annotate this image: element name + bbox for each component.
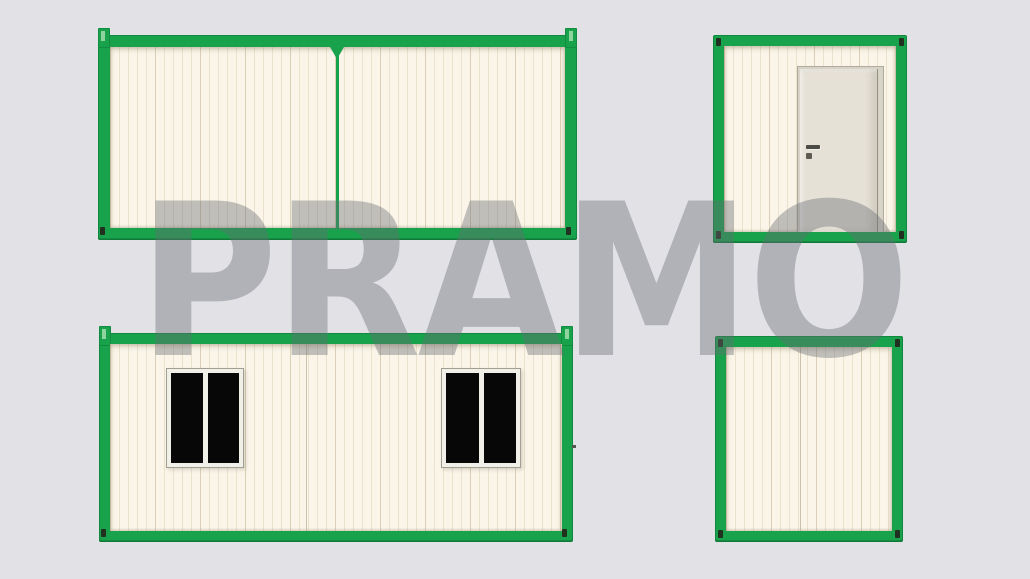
window-pane [484,373,517,463]
wall-panels [110,47,565,228]
panel-seam [800,347,801,531]
corner-hole [895,339,900,347]
window-pane [208,373,240,463]
elevation-long-windows [99,333,573,542]
window-pane [446,373,479,463]
elevation-long-joined [98,35,577,240]
elevation-end-door [713,35,907,243]
casting-slot [569,31,573,41]
corner-hole [899,231,904,239]
door-keyhole-icon [806,153,812,159]
wall-panels [724,46,896,232]
door-frame [797,66,884,232]
corner-casting-icon [99,326,111,346]
corner-hole [716,231,721,239]
corner-hole [566,227,571,235]
corner-hole [899,38,904,46]
corner-hole [718,530,723,538]
corner-hole [562,529,567,537]
door [800,69,878,232]
corner-hole [718,339,723,347]
casting-slot [101,31,105,41]
side-latch [572,445,576,448]
corner-hole [716,38,721,46]
corner-casting-icon [98,28,110,48]
module-joint [336,47,339,228]
wall-panels [110,344,562,531]
container-building-render [0,0,1030,579]
wall-panels [726,347,892,531]
corner-hole [895,530,900,538]
elevation-end-plain [715,336,903,542]
window [166,368,244,468]
window [441,368,521,468]
casting-slot [565,329,569,339]
door-handle-icon [806,145,820,149]
corner-casting-icon [565,28,577,48]
corner-hole [101,529,106,537]
casting-slot [102,329,106,339]
corner-casting-icon [561,326,573,346]
corner-hole [100,227,105,235]
panel-seam [306,344,307,531]
window-pane [171,373,203,463]
